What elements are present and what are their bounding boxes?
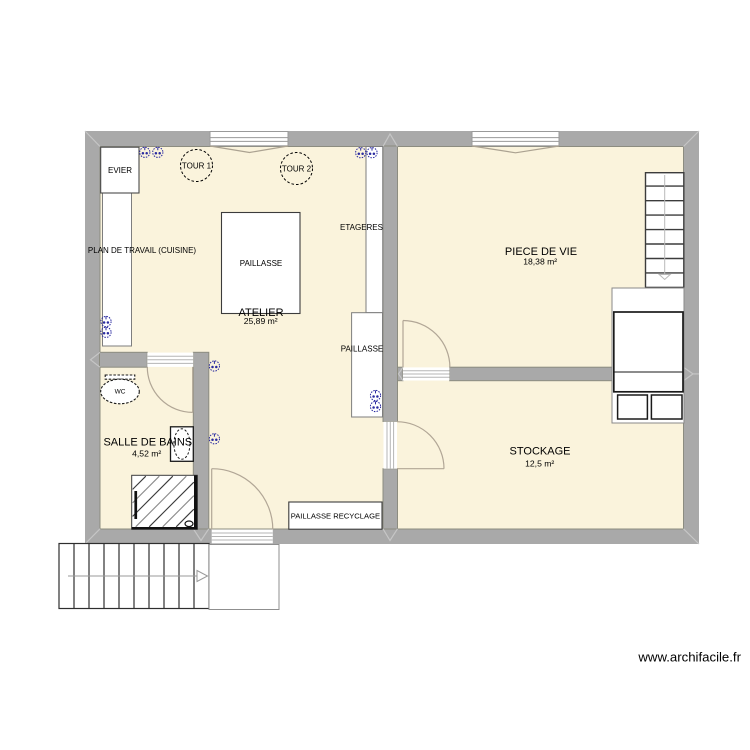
svg-text:WC: WC (115, 389, 126, 396)
svg-text:www.archifacile.fr: www.archifacile.fr (637, 650, 741, 665)
svg-text:PLAN DE TRAVAIL (CUISINE): PLAN DE TRAVAIL (CUISINE) (88, 246, 197, 255)
svg-text:SALLE DE BAINS: SALLE DE BAINS (103, 436, 192, 448)
svg-text:18,38 m²: 18,38 m² (523, 256, 557, 266)
svg-text:25,89 m²: 25,89 m² (244, 316, 278, 326)
svg-text:EVIER: EVIER (108, 166, 132, 175)
svg-text:PAILLASSE: PAILLASSE (240, 259, 283, 268)
svg-text:PAILLASSE RECYCLAGE: PAILLASSE RECYCLAGE (291, 511, 380, 520)
svg-text:STOCKAGE: STOCKAGE (510, 446, 571, 458)
svg-text:12,5 m²: 12,5 m² (525, 458, 554, 468)
svg-text:4,52 m²: 4,52 m² (132, 449, 161, 459)
svg-text:ETAGERES: ETAGERES (340, 223, 383, 232)
svg-text:TOUR 2: TOUR 2 (282, 165, 312, 174)
svg-text:PAILLASSE: PAILLASSE (341, 344, 384, 353)
svg-text:TOUR 1: TOUR 1 (182, 162, 212, 171)
